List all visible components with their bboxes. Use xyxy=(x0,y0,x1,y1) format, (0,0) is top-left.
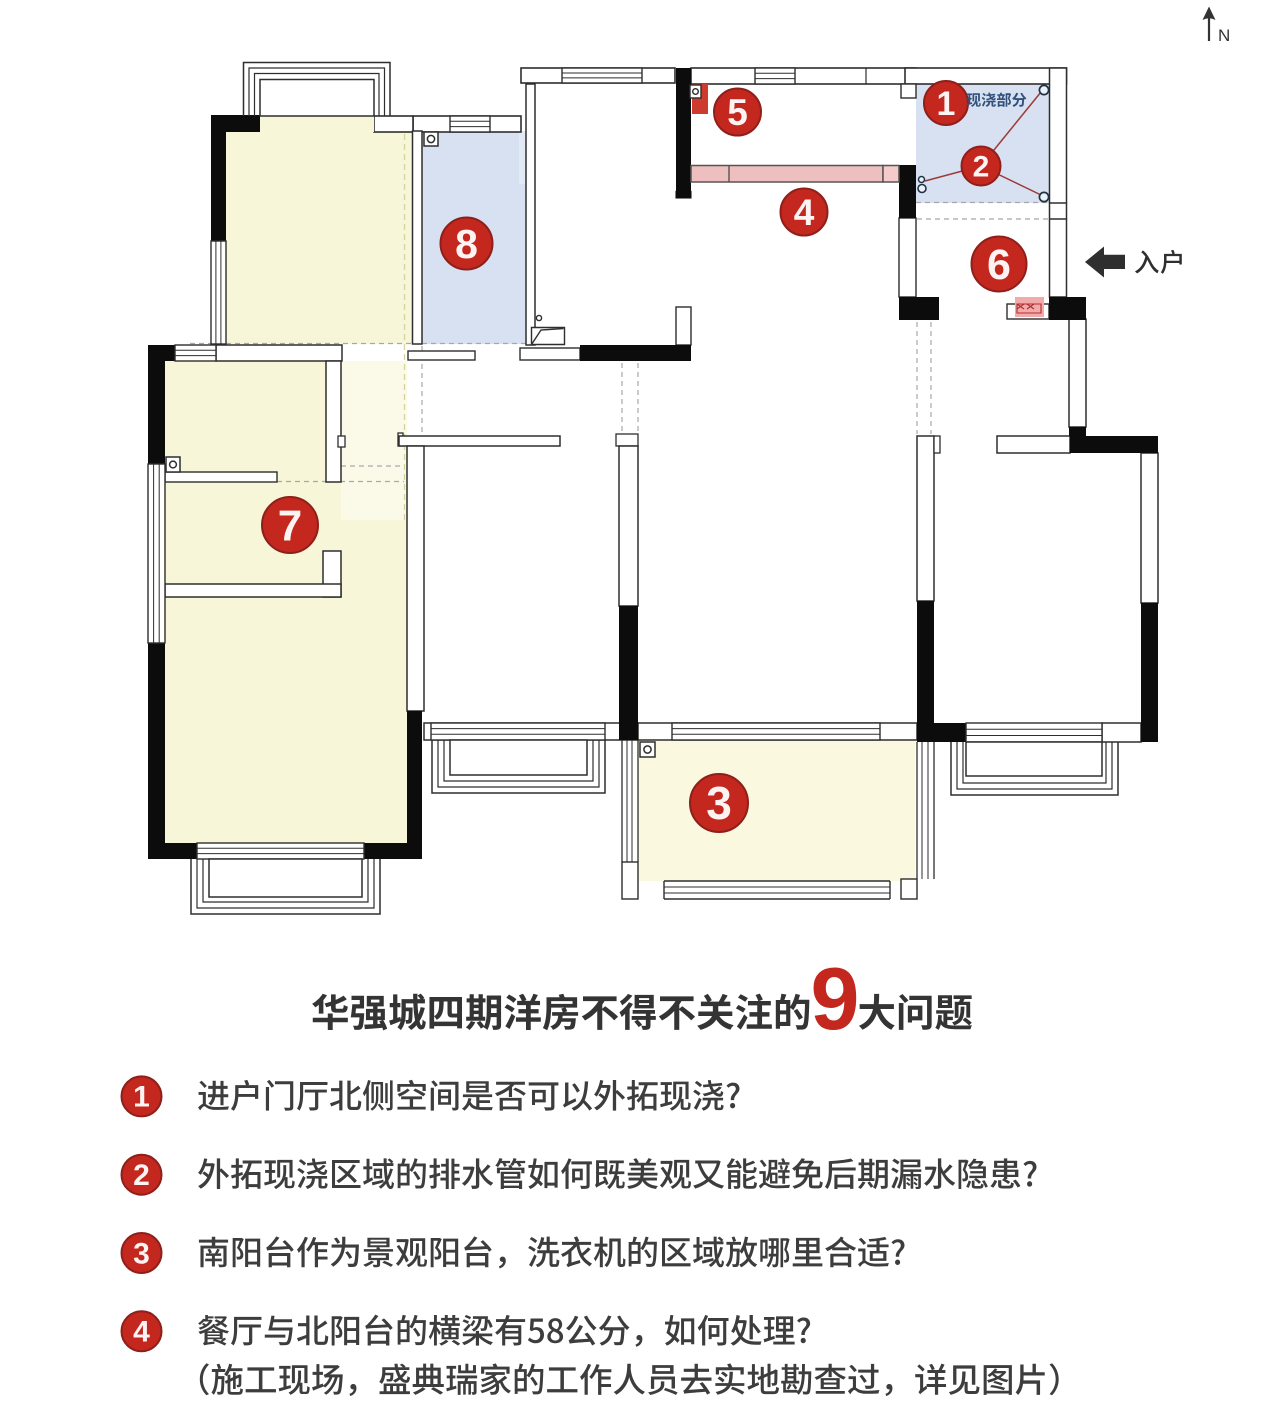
svg-text:4: 4 xyxy=(794,192,815,233)
svg-text:N: N xyxy=(1218,26,1230,45)
svg-text:5: 5 xyxy=(727,92,748,133)
svg-text:2: 2 xyxy=(133,1159,150,1192)
svg-text:6: 6 xyxy=(987,241,1011,289)
svg-text:7: 7 xyxy=(278,501,302,550)
svg-text:4: 4 xyxy=(133,1316,150,1349)
svg-text:3: 3 xyxy=(133,1237,150,1270)
svg-text:1: 1 xyxy=(937,85,956,123)
svg-text:2: 2 xyxy=(973,151,990,184)
svg-text:9: 9 xyxy=(811,949,860,1048)
svg-text:1: 1 xyxy=(133,1081,150,1114)
svg-text:8: 8 xyxy=(455,221,478,267)
svg-text:3: 3 xyxy=(706,777,732,829)
